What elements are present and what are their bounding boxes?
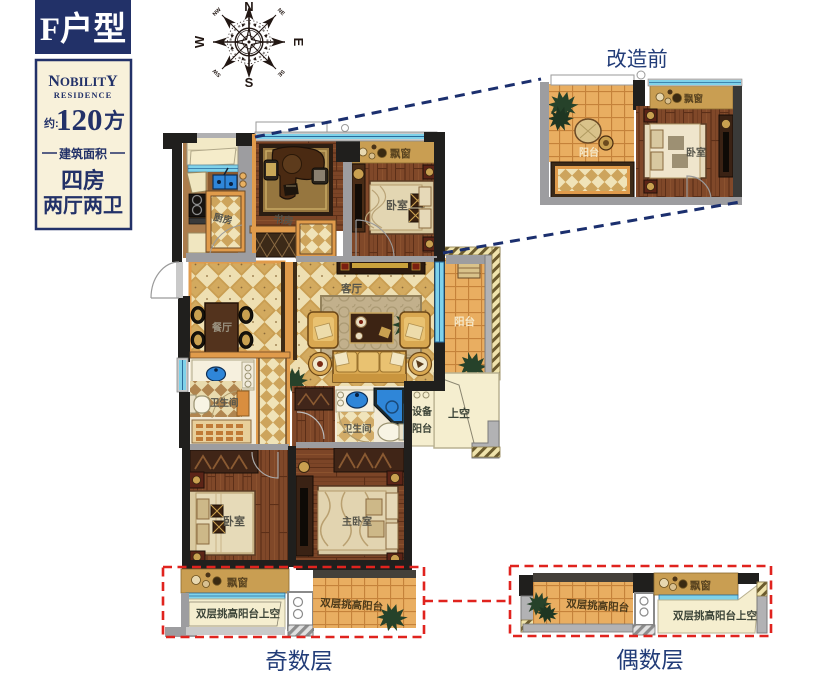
svg-text:F户型: F户型: [40, 11, 126, 48]
svg-text:卧室: 卧室: [386, 198, 408, 212]
svg-text:阳台: 阳台: [454, 315, 475, 328]
svg-text:上空: 上空: [448, 406, 470, 420]
svg-text:餐厅: 餐厅: [211, 321, 232, 334]
svg-text:N: N: [244, 0, 253, 14]
svg-text:飘窗: 飘窗: [683, 93, 704, 105]
svg-text:阳台: 阳台: [579, 146, 599, 159]
svg-text:卧室: 卧室: [686, 146, 706, 159]
svg-text:四房: 四房: [61, 168, 105, 193]
svg-text:RESIDENCE: RESIDENCE: [54, 90, 113, 100]
svg-text:改造前: 改造前: [606, 48, 668, 71]
svg-text:双层挑高阳台上空: 双层挑高阳台上空: [672, 609, 757, 622]
svg-text:偶数层: 偶数层: [616, 648, 684, 673]
svg-text:方: 方: [104, 109, 125, 133]
svg-text:建筑面积: 建筑面积: [58, 146, 107, 161]
svg-text:设备: 设备: [412, 405, 433, 418]
svg-text:飘窗: 飘窗: [227, 576, 248, 589]
svg-text:阳台: 阳台: [412, 422, 432, 435]
svg-text:客厅: 客厅: [340, 282, 362, 295]
svg-text:飘窗: 飘窗: [390, 147, 411, 160]
svg-text:飘窗: 飘窗: [690, 579, 711, 592]
svg-text:E: E: [291, 38, 306, 47]
svg-text:120: 120: [56, 102, 103, 137]
svg-text:主卧室: 主卧室: [342, 515, 372, 528]
svg-text:奇数层: 奇数层: [265, 649, 333, 673]
svg-text:W: W: [192, 35, 207, 48]
svg-text:卧室: 卧室: [223, 514, 245, 528]
svg-text:双层挑高阳台上空: 双层挑高阳台上空: [195, 607, 280, 620]
svg-text:NOBILITY: NOBILITY: [48, 73, 118, 90]
svg-text:卫生间: 卫生间: [210, 397, 239, 409]
svg-text:两厅两卫: 两厅两卫: [43, 195, 123, 217]
svg-text:S: S: [245, 75, 254, 90]
